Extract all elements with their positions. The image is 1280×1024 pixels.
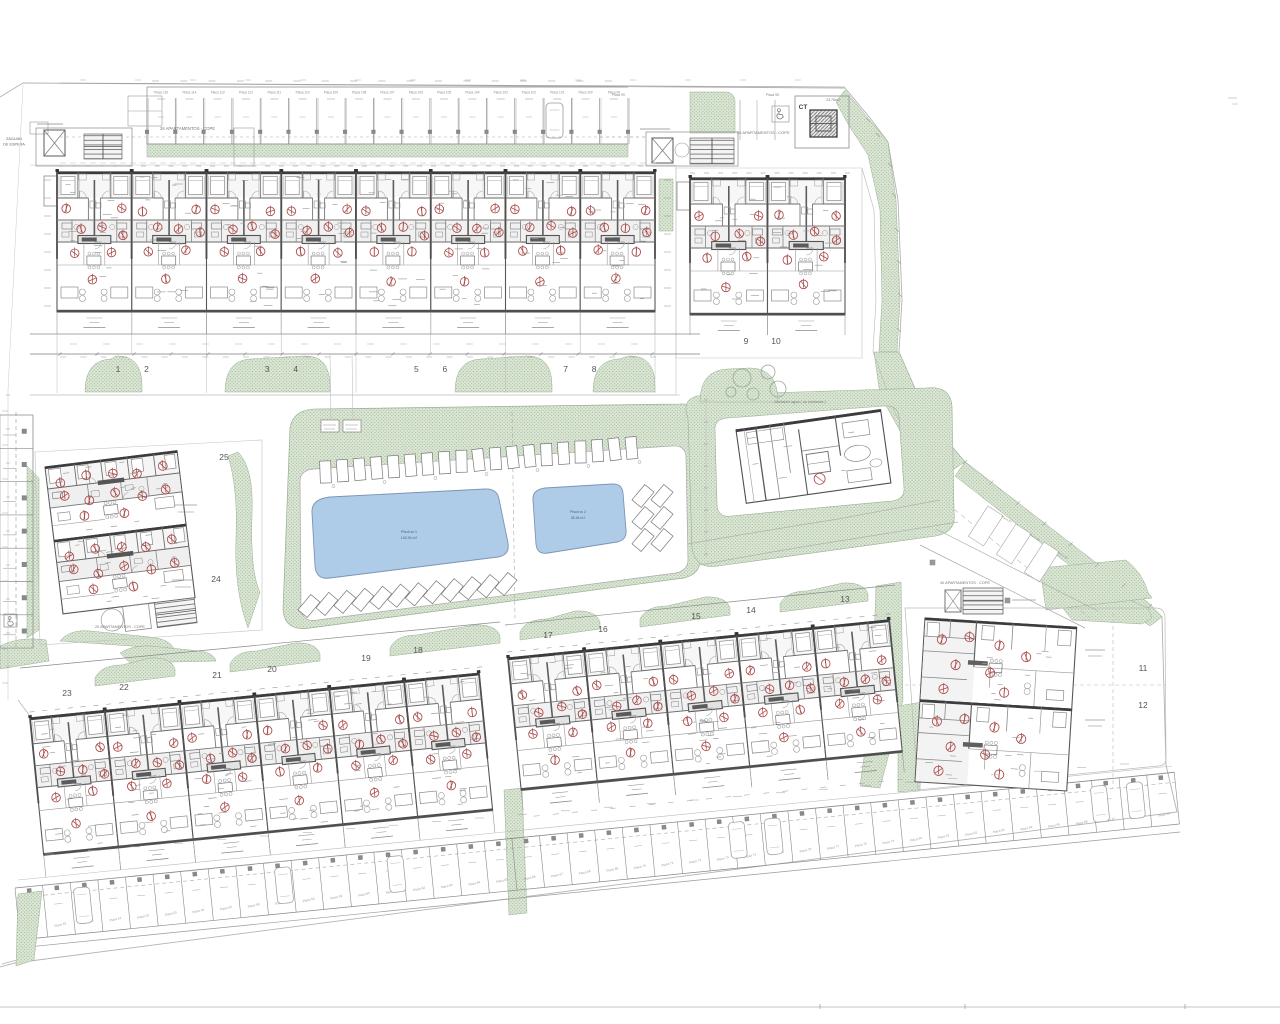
- svg-text:26 APARTAMENTOS - COPE: 26 APARTAMENTOS - COPE: [737, 130, 790, 135]
- svg-text:11: 11: [1139, 663, 1148, 673]
- svg-text:38.48 m2: 38.48 m2: [571, 516, 586, 520]
- svg-text:CT: CT: [799, 104, 808, 111]
- svg-text:Placa 106: Placa 106: [409, 91, 423, 95]
- svg-text:Placa 107: Placa 107: [380, 91, 394, 95]
- svg-text:Placa 100: Placa 100: [579, 91, 593, 95]
- svg-text:21: 21: [212, 670, 222, 680]
- svg-text:1: 1: [116, 364, 121, 374]
- svg-text:16: 16: [598, 624, 608, 634]
- svg-text:4: 4: [293, 364, 298, 374]
- svg-text:14: 14: [746, 605, 756, 615]
- svg-text:Contador agua ( us comunes ): Contador agua ( us comunes ): [774, 400, 826, 404]
- svg-text:15: 15: [691, 611, 701, 621]
- svg-text:13: 13: [840, 594, 850, 604]
- svg-text:Placa 105: Placa 105: [437, 91, 451, 95]
- svg-text:26 APARTAMENTOS - COPE: 26 APARTAMENTOS - COPE: [160, 126, 215, 131]
- svg-text:Placa 112: Placa 112: [239, 91, 253, 95]
- svg-text:18: 18: [413, 645, 423, 655]
- svg-text:23.78m2: 23.78m2: [826, 98, 840, 102]
- svg-text:Placa 103: Placa 103: [494, 91, 508, 95]
- svg-text:Placa 104: Placa 104: [465, 91, 479, 95]
- svg-text:25: 25: [219, 452, 229, 462]
- svg-text:22: 22: [119, 682, 129, 692]
- svg-text:Placa 110: Placa 110: [296, 91, 310, 95]
- svg-text:2: 2: [144, 364, 149, 374]
- svg-text:6: 6: [443, 364, 448, 374]
- svg-text:Placa 114: Placa 114: [182, 91, 196, 95]
- svg-text:Piscina 1: Piscina 1: [401, 529, 418, 534]
- svg-text:7: 7: [563, 364, 568, 374]
- svg-text:Placa 101: Placa 101: [550, 91, 564, 95]
- svg-text:9: 9: [744, 336, 749, 346]
- svg-text:12: 12: [1138, 700, 1148, 710]
- svg-text:20 APARTAMENTOS - COPE: 20 APARTAMENTOS - COPE: [95, 625, 145, 629]
- svg-text:10: 10: [771, 336, 781, 346]
- svg-text:Placa 111: Placa 111: [267, 91, 281, 95]
- svg-text:5: 5: [414, 364, 419, 374]
- svg-text:146.36 m2: 146.36 m2: [401, 536, 418, 540]
- svg-text:Placa 109: Placa 109: [324, 91, 338, 95]
- svg-text:Placa 115: Placa 115: [154, 91, 168, 95]
- svg-text:23: 23: [62, 688, 72, 698]
- svg-text:Placa 108: Placa 108: [352, 91, 366, 95]
- svg-text:Placa 113: Placa 113: [211, 91, 225, 95]
- svg-text:8: 8: [592, 364, 597, 374]
- svg-text:Placa 102: Placa 102: [522, 91, 536, 95]
- svg-text:3: 3: [265, 364, 270, 374]
- svg-text:Piscina 2: Piscina 2: [570, 509, 587, 514]
- svg-text:24: 24: [211, 574, 221, 584]
- svg-text:DE ESPERA: DE ESPERA: [3, 143, 25, 147]
- svg-text:40 APARTAMENTOS - COPE: 40 APARTAMENTOS - COPE: [940, 581, 990, 585]
- svg-text:Placa 98: Placa 98: [766, 93, 779, 97]
- svg-text:20: 20: [267, 664, 277, 674]
- svg-text:Placa 99: Placa 99: [612, 93, 625, 97]
- svg-text:ZAGUAN: ZAGUAN: [6, 137, 22, 141]
- svg-text:19: 19: [361, 653, 371, 663]
- svg-text:17: 17: [543, 630, 553, 640]
